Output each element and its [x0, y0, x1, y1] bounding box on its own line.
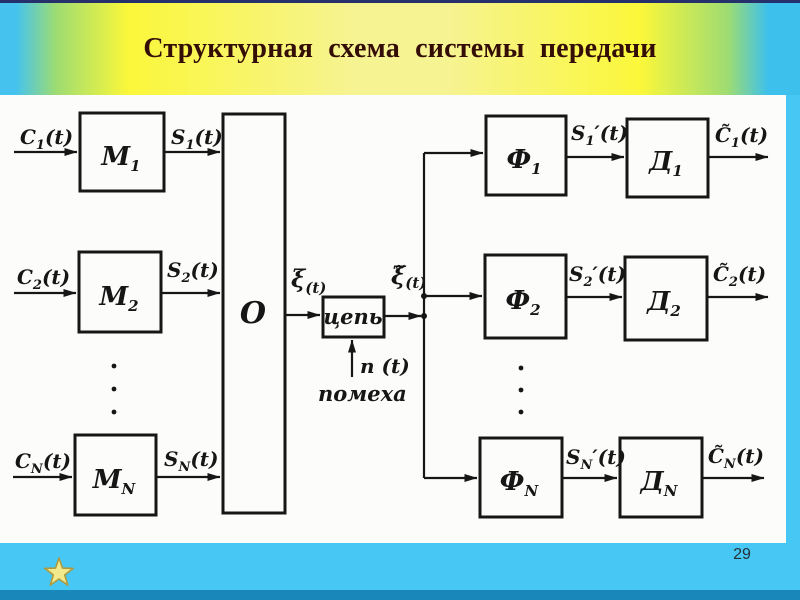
block-label-mn: МN: [92, 465, 137, 498]
signal-label-c2-tilde: C̃2(t): [713, 262, 766, 290]
signal-label-cn-tilde: C̃N(t): [708, 444, 764, 472]
signal-label-s2: S2(t): [167, 258, 219, 286]
ellipsis-right: [519, 366, 524, 415]
signal-label-sn: SN(t): [164, 447, 219, 475]
top-border-line: [0, 0, 800, 3]
block-label-f1: Ф1: [506, 145, 541, 178]
signal-label-s2-prime: S2′(t): [569, 262, 626, 290]
diagram-area: М1 М2 МN О цепь Ф1 Ф2 ФN Д1 Д2 ДN C1(t) …: [0, 95, 786, 543]
signal-label-sn-prime: SN′(t): [566, 445, 626, 473]
noise-caption: помеха: [318, 381, 407, 406]
block-label-d2: Д2: [645, 287, 681, 320]
signal-label-noise: n (t): [360, 354, 410, 378]
transmission-diagram: М1 М2 МN О цепь Ф1 Ф2 ФN Д1 Д2 ДN C1(t) …: [0, 95, 786, 543]
page-number: 29: [720, 546, 764, 564]
signal-label-c2: C2(t): [17, 265, 70, 293]
bus-junction-dot: [421, 293, 427, 299]
bottom-border-strip: [0, 590, 800, 600]
block-label-d1: Д1: [647, 147, 683, 180]
signal-label-cn: CN(t): [15, 449, 71, 477]
block-label-f2: Ф2: [505, 286, 540, 319]
signal-label-sum: ξ(t): [291, 264, 326, 297]
signal-label-sum-out: ξ̃(t): [391, 261, 426, 292]
slide-title: Структурная схема системы передачи: [0, 33, 800, 65]
block-label-fn: ФN: [500, 467, 540, 500]
bus-junction-dot: [421, 313, 427, 319]
ellipsis-left: [112, 364, 117, 415]
block-label-dn: ДN: [639, 467, 679, 500]
slide: { "slide": { "title": "Структурная схема…: [0, 0, 800, 600]
block-label-channel: цепь: [323, 304, 382, 329]
block-label-combiner: О: [240, 296, 266, 331]
block-label-m2: М2: [98, 282, 138, 315]
signal-label-s1-prime: S1′(t): [571, 121, 628, 149]
block-label-m1: М1: [100, 142, 140, 175]
signal-label-c1: C1(t): [20, 125, 73, 153]
signal-label-s1: S1(t): [171, 125, 223, 153]
signal-label-c1-tilde: C̃1(t): [715, 123, 768, 151]
